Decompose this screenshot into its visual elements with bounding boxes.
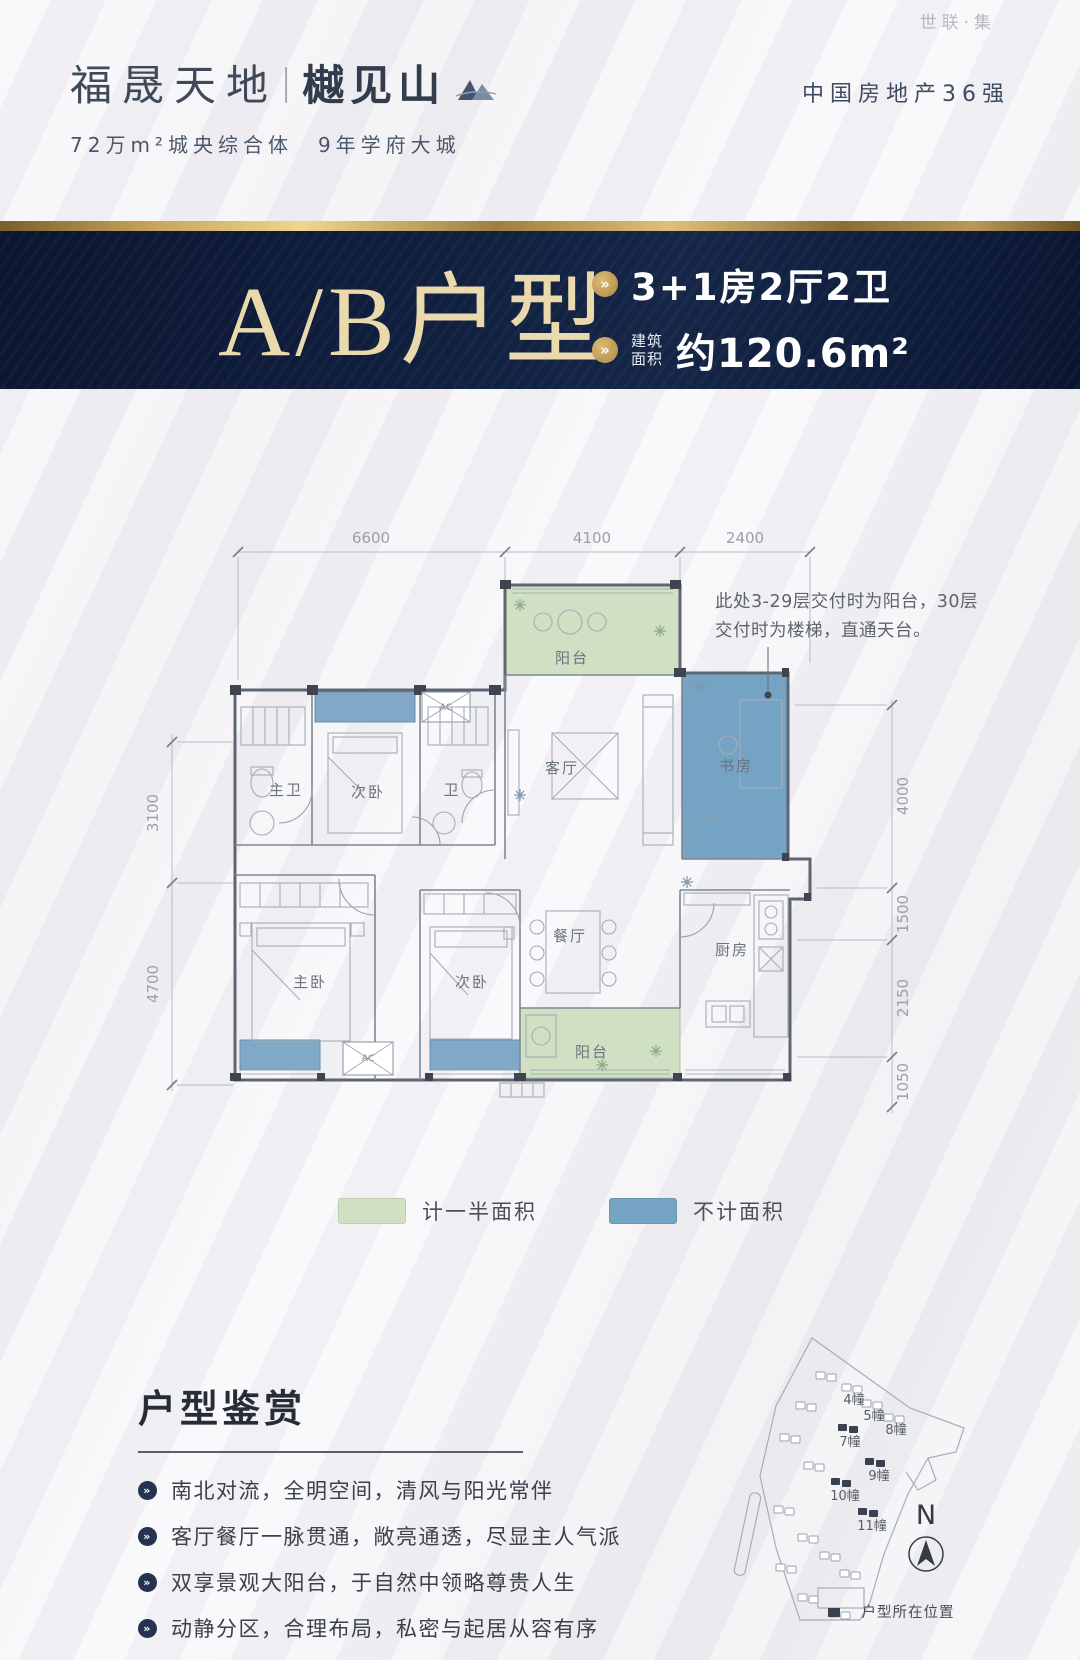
feature-item: »南北对流，全明空间，清风与阳光常伴 [138, 1475, 718, 1505]
svg-text:2400: 2400 [726, 529, 764, 547]
feature-item: »客厅餐厅一脉贯通，敞亮通透，尽显主人气派 [138, 1521, 718, 1551]
building-label: 5幢 [863, 1408, 884, 1424]
svg-text:1500: 1500 [894, 895, 912, 933]
floorplan-drawing: AC AC [100, 495, 1000, 1155]
room-label-study: 书房 [719, 757, 753, 775]
chevron-right-icon: » [592, 271, 618, 297]
room-label-bedroom3: 次卧 [455, 973, 489, 991]
watermark: 世联·集 [920, 8, 996, 33]
dimensions-left: 3100 4700 [144, 735, 233, 1091]
svg-text:4000: 4000 [894, 777, 912, 815]
logo-primary-text: 福晟天地 [70, 52, 278, 113]
svg-text:交付时为楼梯，直通天台。: 交付时为楼梯，直通天台。 [715, 621, 931, 641]
room-label-balcony-top: 阳台 [555, 649, 589, 667]
feature-item: »双享景观大阳台，于自然中领略尊贵人生 [138, 1567, 718, 1597]
planter-area [315, 692, 415, 722]
sitemap-caption: 户型所在位置 [862, 1604, 955, 1621]
title-banner: A/B户型 » 3+1房2厅2卫 » 建筑 面积 约120.6m² [0, 231, 1080, 389]
svg-text:此处3-29层交付时为阳台，30层: 此处3-29层交付时为阳台，30层 [715, 592, 978, 612]
building-label: 9幢 [868, 1468, 889, 1484]
plan-legend: 计一半面积 不计面积 [338, 1196, 785, 1226]
plant-icon [514, 789, 526, 801]
feature-item: »动静分区，合理布局，私密与起居从容有序 [138, 1613, 718, 1643]
unit-type-title: A/B户型 [218, 239, 610, 384]
room-label-balcony-bottom: 阳台 [575, 1043, 609, 1061]
chevron-right-icon: » [138, 1573, 157, 1592]
building-label: 11幢 [857, 1518, 887, 1534]
room-label-dining: 餐厅 [553, 927, 587, 945]
building-label: 7幢 [839, 1434, 860, 1450]
location-marker [828, 1608, 840, 1617]
room-label-kitchen: 厨房 [715, 941, 749, 959]
poster-page: 世联·集 福晟天地 | 樾见山 72万m²城央综合体 9年学府大城 中国房地产3… [0, 0, 1080, 1660]
plant-icon [681, 876, 693, 888]
blue-swatch [609, 1198, 677, 1224]
svg-text:AC: AC [440, 703, 452, 713]
brand-logo: 福晟天地 | 樾见山 [70, 52, 500, 113]
room-label-bedroom2: 次卧 [351, 783, 385, 801]
svg-text:3100: 3100 [144, 794, 162, 832]
legend-item-half-area: 计一半面积 [338, 1196, 537, 1226]
site-boundary [760, 1338, 964, 1620]
mountain-icon [452, 74, 500, 102]
room-count-text: 3+1房2厅2卫 [631, 257, 892, 311]
ranking-text: 中国房地产36强 [802, 76, 1010, 108]
area-label: 建筑 面积 [631, 332, 663, 368]
unit-specs: » 3+1房2厅2卫 » 建筑 面积 约120.6m² [592, 257, 910, 379]
ac-unit: AC [343, 1042, 393, 1075]
svg-text:6600: 6600 [352, 529, 390, 547]
svg-text:N: N [916, 1500, 936, 1531]
brand-tagline: 72万m²城央综合体 9年学府大城 [70, 129, 500, 158]
building-label: 4幢 [843, 1392, 864, 1408]
svg-text:1050: 1050 [894, 1063, 912, 1101]
features-divider [138, 1451, 523, 1453]
chevron-right-icon: » [138, 1619, 157, 1638]
chevron-right-icon: » [592, 337, 618, 363]
room-label-master-bath: 主卫 [269, 781, 303, 799]
planter-area [430, 1040, 520, 1070]
logo-secondary-text: 樾见山 [302, 52, 446, 113]
room-label-living: 客厅 [545, 759, 579, 777]
door-arcs [279, 790, 726, 937]
features-title: 户型鉴赏 [138, 1378, 718, 1433]
green-swatch [338, 1198, 406, 1224]
legend-item-no-area: 不计面积 [609, 1196, 785, 1226]
building-label: 10幢 [830, 1488, 860, 1504]
building-label: 8幢 [885, 1422, 906, 1438]
dimensions-right: 4000 1500 2150 1050 [795, 700, 912, 1113]
gold-divider [0, 221, 1080, 231]
room-label-master-bedroom: 主卧 [293, 973, 327, 991]
area-row: » 建筑 面积 约120.6m² [592, 321, 910, 379]
svg-text:2150: 2150 [894, 979, 912, 1017]
planter-area [240, 1040, 320, 1070]
room-label-bath: 卫 [443, 781, 460, 799]
svg-text:4100: 4100 [573, 529, 611, 547]
features-list: »南北对流，全明空间，清风与阳光常伴 »客厅餐厅一脉贯通，敞亮通透，尽显主人气派… [138, 1475, 718, 1660]
svg-text:AC: AC [362, 1054, 374, 1064]
site-map: 4幢 5幢 8幢 7幢 9幢 10幢 11幢 N 户型所在位置 [712, 1252, 1018, 1632]
logo-divider: | [280, 62, 292, 103]
svg-text:4700: 4700 [144, 965, 162, 1003]
spec-row: » 3+1房2厅2卫 [592, 257, 910, 311]
features-section: 户型鉴赏 »南北对流，全明空间，清风与阳光常伴 »客厅餐厅一脉贯通，敞亮通透，尽… [138, 1378, 718, 1660]
chevron-right-icon: » [138, 1481, 157, 1500]
header: 福晟天地 | 樾见山 72万m²城央综合体 9年学府大城 [70, 52, 500, 158]
chevron-right-icon: » [138, 1527, 157, 1546]
compass-north-icon: N [909, 1500, 943, 1571]
area-value: 约120.6m² [676, 321, 910, 379]
plant-icon [650, 1045, 662, 1057]
